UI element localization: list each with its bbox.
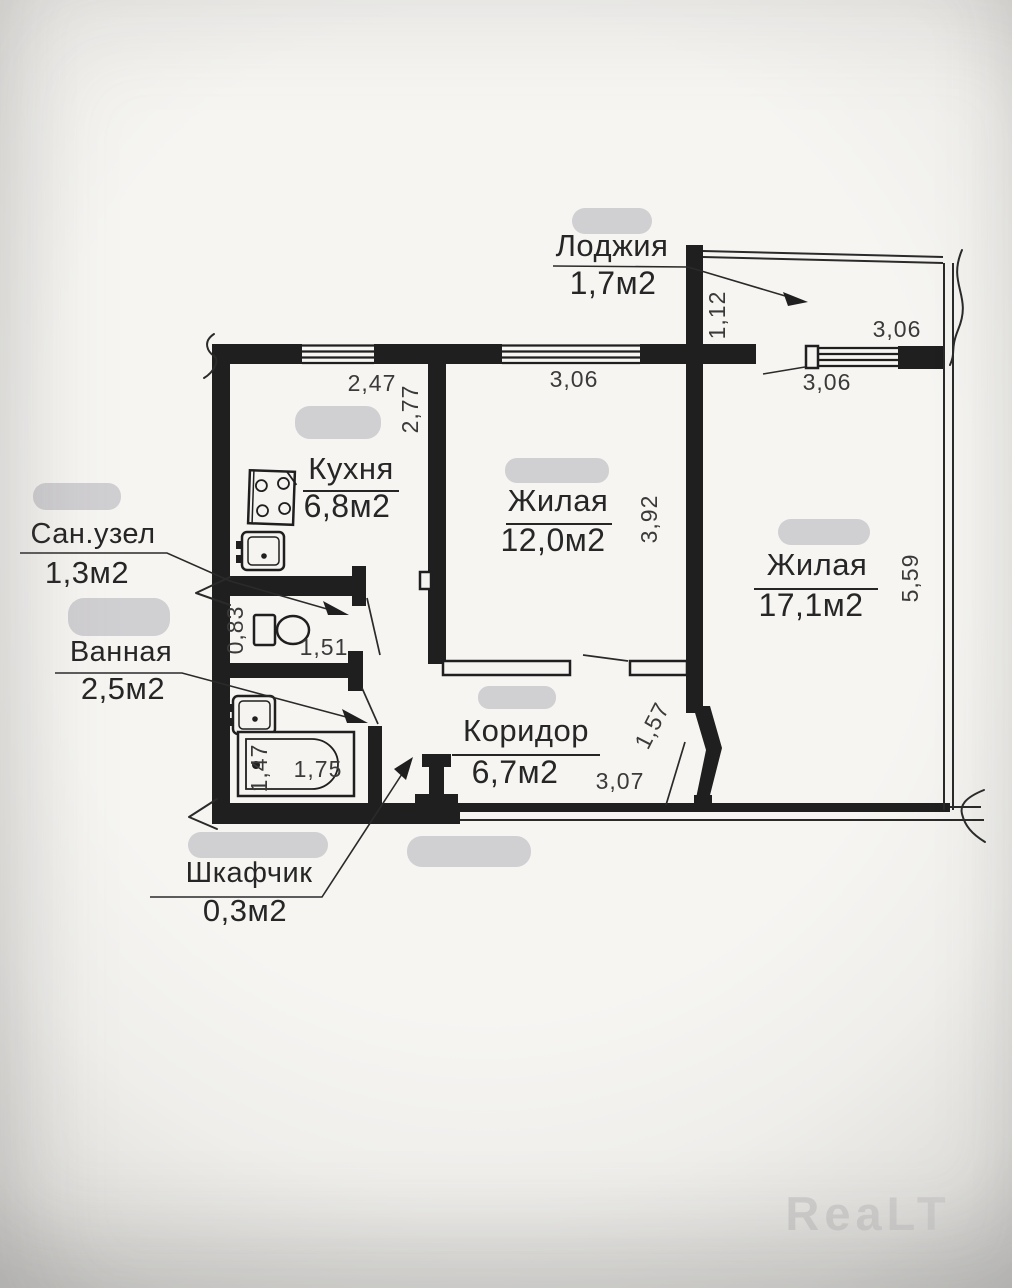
living1-window bbox=[502, 346, 640, 364]
redaction-blobs bbox=[33, 208, 870, 867]
redaction-blob bbox=[778, 519, 870, 545]
redaction-blob bbox=[33, 483, 121, 510]
loggia-column bbox=[686, 245, 703, 713]
bath-sink-icon bbox=[227, 696, 275, 734]
living1-label: Жилая bbox=[508, 483, 609, 518]
realt-watermark: ReaLT bbox=[785, 1187, 950, 1240]
dim-corridor-bottom: 3,07 bbox=[596, 768, 645, 794]
redaction-blob bbox=[407, 836, 531, 867]
living1-area: 12,0м2 bbox=[500, 522, 605, 558]
redaction-blob bbox=[505, 458, 609, 483]
dim-kitchen-top: 2,47 bbox=[348, 370, 397, 396]
redaction-blob bbox=[68, 598, 170, 636]
corridor-label: Коридор bbox=[463, 713, 589, 748]
dim-loggia-window: 3,06 bbox=[803, 369, 852, 395]
kitchen-sink-icon bbox=[236, 532, 284, 570]
dim-living1-right: 3,92 bbox=[636, 495, 662, 544]
closet-arrow bbox=[394, 757, 413, 780]
bathroom-area: 2,5м2 bbox=[81, 671, 165, 706]
dim-bath-left: 1,47 bbox=[246, 744, 272, 793]
loggia-window bbox=[818, 348, 898, 366]
dim-loggia-depth: 1,12 bbox=[704, 291, 730, 340]
kitchen-living-wall bbox=[428, 364, 446, 664]
redaction-blob bbox=[478, 686, 556, 709]
floorplan-drawing: Лоджия 1,7м2 Кухня 6,8м2 Жилая 12,0м2 Жи… bbox=[0, 0, 1012, 1288]
wc-label: Сан.узел bbox=[30, 518, 155, 550]
wc-area: 1,3м2 bbox=[45, 555, 129, 590]
kitchen-label: Кухня bbox=[308, 451, 393, 486]
stove-icon bbox=[248, 470, 297, 525]
bottom-exterior-wall bbox=[217, 803, 460, 824]
closet-area: 0,3м2 bbox=[203, 893, 287, 928]
kitchen-area: 6,8м2 bbox=[304, 488, 391, 524]
redaction-blob bbox=[188, 832, 328, 858]
closet-label: Шкафчик bbox=[186, 857, 313, 889]
living2-area: 17,1м2 bbox=[758, 587, 863, 623]
loggia-area: 1,7м2 bbox=[570, 265, 657, 301]
floorplan-scan: Лоджия 1,7м2 Кухня 6,8м2 Жилая 12,0м2 Жи… bbox=[0, 0, 1012, 1288]
wc-arrow bbox=[323, 601, 349, 615]
corridor-area: 6,7м2 bbox=[472, 754, 559, 790]
living2-label: Жилая bbox=[767, 547, 868, 582]
dim-wc-bottom: 1,51 bbox=[300, 634, 349, 660]
dim-living1-top: 3,06 bbox=[550, 366, 599, 392]
dim-wc-left: 0,83 bbox=[222, 606, 248, 655]
loggia-arrow bbox=[783, 292, 808, 306]
dim-living2-right: 5,59 bbox=[897, 554, 923, 603]
corridor-chamfer-wall bbox=[693, 706, 722, 803]
bathroom-label: Ванная bbox=[70, 636, 172, 668]
kitchen-window bbox=[302, 346, 374, 364]
bathroom-arrow bbox=[342, 709, 368, 723]
dim-kitchen-left: 2,77 bbox=[397, 385, 423, 434]
break-top-right bbox=[950, 250, 963, 365]
dim-loggia-top: 3,06 bbox=[873, 316, 922, 342]
redaction-blob bbox=[295, 406, 381, 439]
loggia-label: Лоджия bbox=[556, 228, 669, 263]
partition-layer bbox=[420, 346, 818, 675]
dim-bath-bottom: 1,75 bbox=[294, 756, 343, 782]
dim-corridor-diag: 1,57 bbox=[629, 698, 674, 753]
break-bottom-right bbox=[962, 790, 985, 842]
